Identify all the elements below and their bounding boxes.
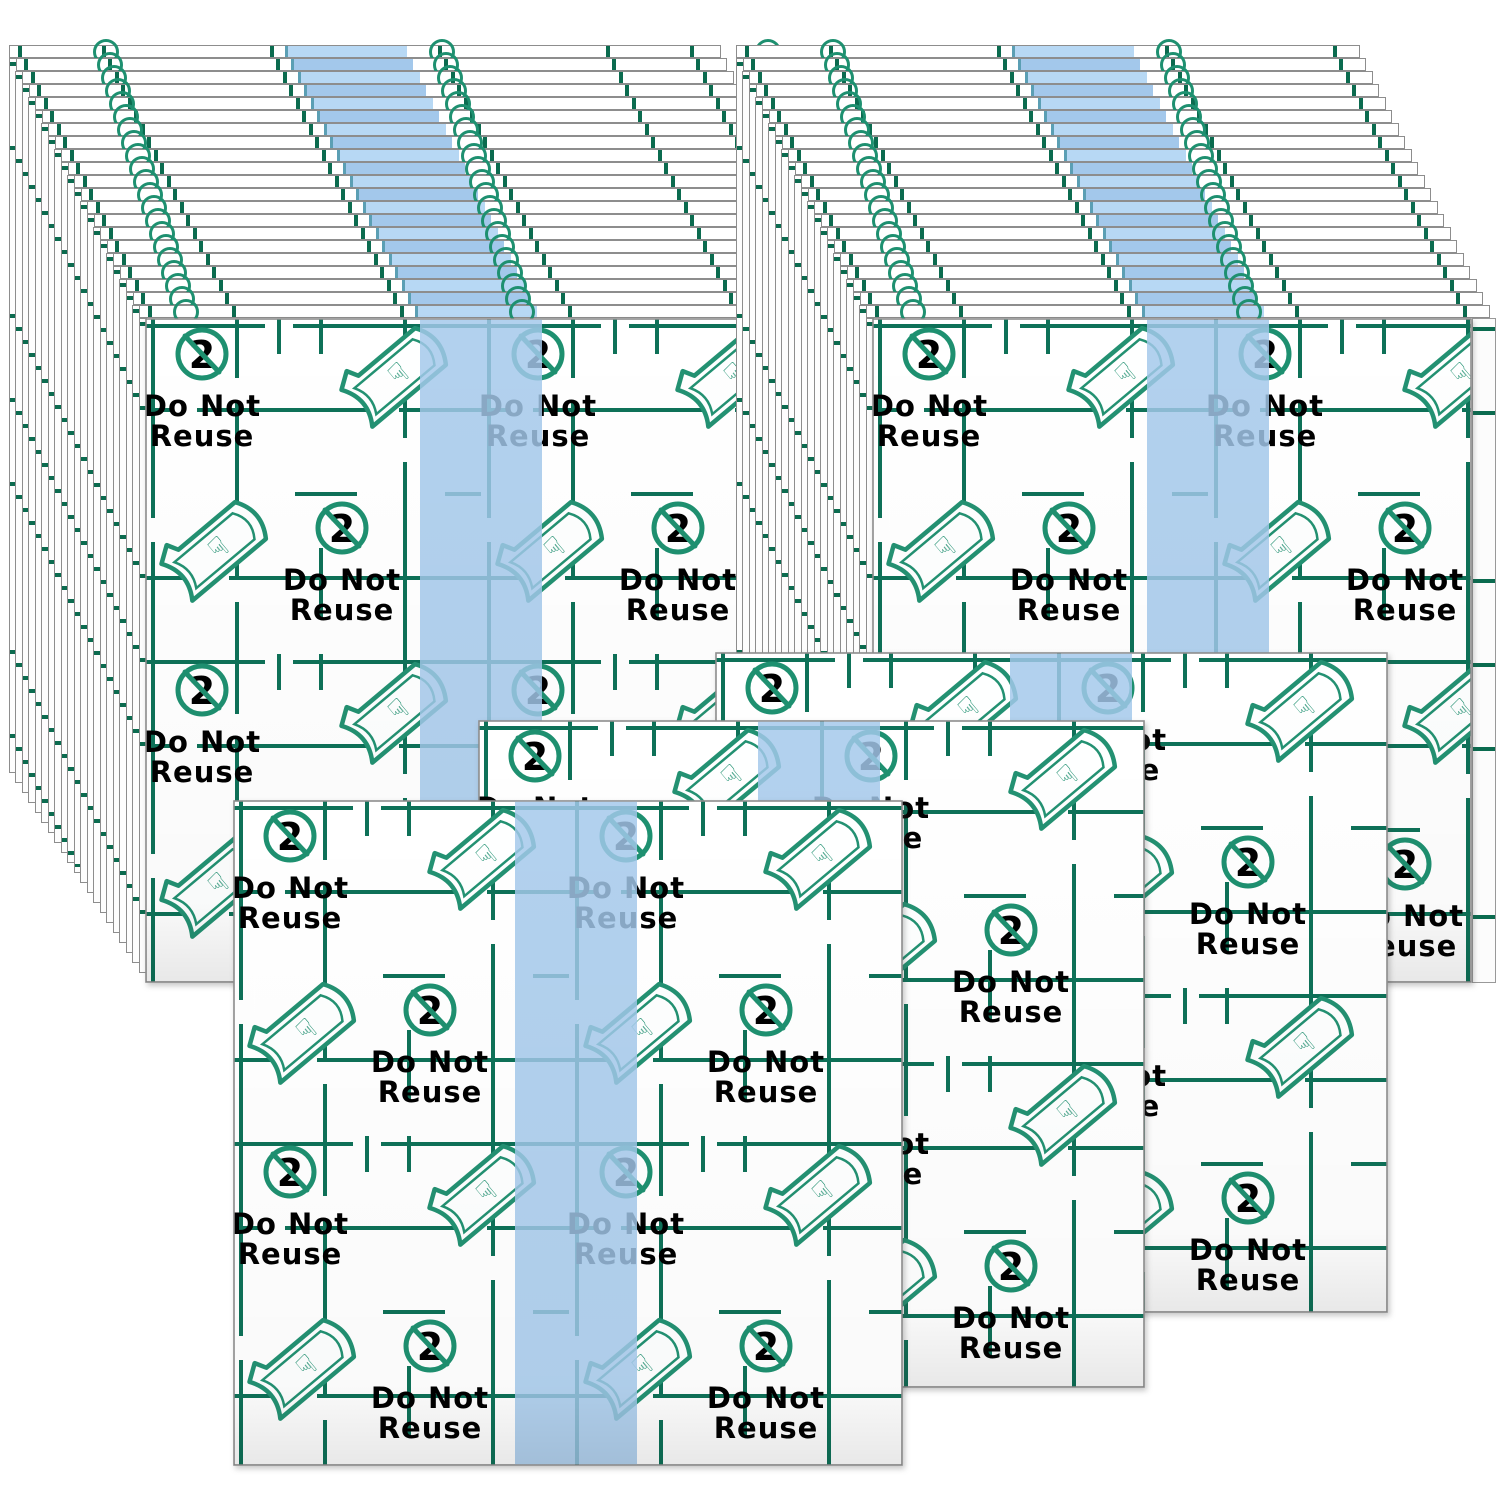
stripe-cross-section [1109,241,1231,252]
stripe-cross-section [285,46,407,57]
stacked-sheet-top-edge [106,240,818,253]
stripe-cross-section [376,228,498,239]
stripe-cross-section [343,163,465,174]
stacked-sheet-top-edge [807,188,1431,201]
stacked-sheet-top-edge [814,201,1438,214]
stripe-cross-section [1025,72,1147,83]
stacked-sheet-top-edge [866,305,1490,318]
stripe-cross-section [1070,163,1192,174]
stacked-sheet-top-edge [67,162,779,175]
stripe-cross-section [1012,46,1134,57]
stripe-cross-section [1051,124,1173,135]
stripe-cross-section [317,111,439,122]
stacked-sheet-top-edge [788,149,1412,162]
edge-shading [234,801,902,1465]
stripe-cross-section [1103,228,1225,239]
stacked-sheet-top-edge [93,214,805,227]
stripe-cross-section [1077,176,1199,187]
stacked-sheet-top-edge [833,240,1457,253]
stacked-sheet-top-edge [846,266,1470,279]
stack-right-side-edge [1472,318,1496,983]
stripe-cross-section [291,59,413,70]
stacked-sheet-top-edge [80,188,792,201]
stacked-sheet-top-edge [100,227,812,240]
stripe-cross-section [1044,111,1166,122]
stripe-cross-section [382,241,504,252]
stacked-sheet-top-edge [35,97,747,110]
product-photo-transparent-film-dressings [0,0,1500,1500]
stacked-sheet-top-edge [801,175,1425,188]
stacked-sheet-top-edge [859,292,1483,305]
stripe-cross-section [1031,85,1153,96]
stacked-sheet-top-edge [41,110,753,123]
stripe-cross-section [330,137,452,148]
stripe-cross-section [1038,98,1160,109]
stripe-cross-section [324,124,446,135]
stripe-cross-section [1090,202,1212,213]
stripe-cross-section [350,176,472,187]
stripe-cross-section [369,215,491,226]
stacked-sheet-top-edge [853,279,1477,292]
stripe-cross-section [356,189,478,200]
stripe-cross-section [304,85,426,96]
stacked-sheet-top-edge [794,162,1418,175]
stripe-cross-section [1096,215,1218,226]
stacked-sheet-top-edge [61,149,773,162]
stacked-sheet-top-edge [54,136,766,149]
stacked-sheet-top-edge [22,71,734,84]
stacked-sheet-top-edge [113,253,825,266]
stacked-sheet-top-edge [48,123,760,136]
stripe-cross-section [311,98,433,109]
stacked-sheet-top-edge [87,201,799,214]
stacked-sheet-top-edge [827,227,1451,240]
stacked-sheet-top-edge [126,279,838,292]
stripe-cross-section [1083,189,1205,200]
stripe-cross-section [337,150,459,161]
stacked-sheet-top-edge [820,214,1444,227]
stripe-cross-section [1018,59,1140,70]
stacked-sheet-top-edge [28,84,740,97]
stripe-cross-section [298,72,420,83]
stripe-cross-section [363,202,485,213]
sheet-front-left [233,800,903,1466]
stacked-sheet-top-edge [74,175,786,188]
stacked-sheet-top-edge [840,253,1464,266]
stripe-cross-section [1057,137,1179,148]
stripe-cross-section [1064,150,1186,161]
stacked-sheet-top-edge [119,266,831,279]
